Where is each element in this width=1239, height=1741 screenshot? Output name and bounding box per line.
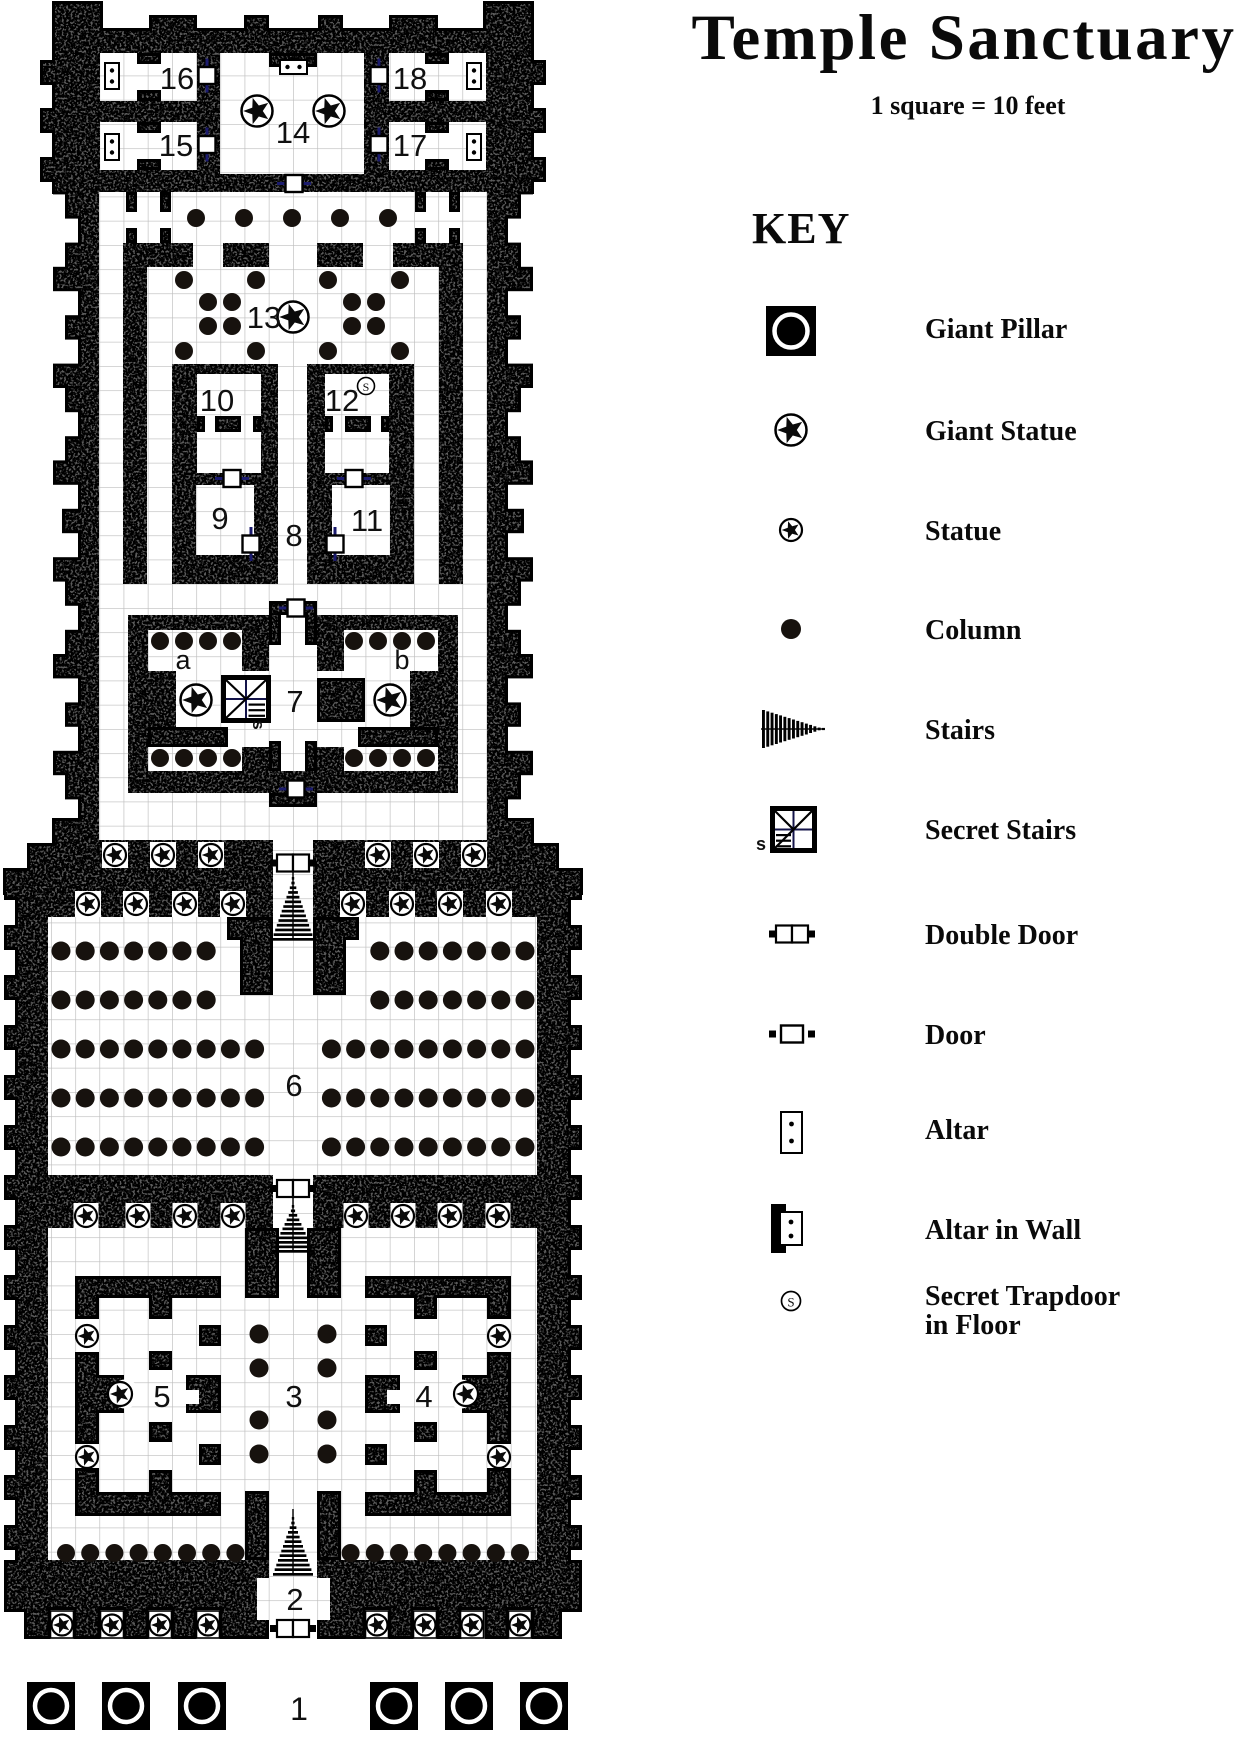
svg-text:1: 1 — [290, 1691, 308, 1727]
svg-text:s: s — [249, 720, 268, 729]
svg-text:10: 10 — [200, 383, 234, 418]
svg-text:1 square = 10 feet: 1 square = 10 feet — [871, 91, 1066, 120]
svg-text:2: 2 — [286, 1582, 303, 1617]
svg-text:KEY: KEY — [752, 204, 850, 253]
svg-text:12: 12 — [325, 383, 359, 418]
svg-text:7: 7 — [286, 684, 303, 719]
svg-text:6: 6 — [285, 1068, 302, 1103]
svg-text:Column: Column — [925, 615, 1022, 646]
svg-text:Double Door: Double Door — [925, 920, 1078, 951]
svg-text:S: S — [787, 1295, 794, 1310]
svg-text:18: 18 — [393, 61, 427, 96]
svg-text:Stairs: Stairs — [925, 715, 995, 746]
svg-text:3: 3 — [285, 1379, 302, 1414]
svg-text:Giant Pillar: Giant Pillar — [925, 314, 1067, 345]
svg-text:5: 5 — [153, 1379, 170, 1414]
svg-text:Temple Sanctuary: Temple Sanctuary — [692, 2, 1237, 74]
svg-text:S: S — [363, 380, 370, 394]
svg-text:a: a — [175, 645, 191, 675]
svg-text:Statue: Statue — [925, 516, 1001, 547]
svg-text:13: 13 — [247, 300, 281, 335]
svg-text:11: 11 — [351, 503, 383, 538]
svg-text:in Floor: in Floor — [925, 1310, 1021, 1341]
svg-text:17: 17 — [393, 128, 427, 163]
svg-text:Altar: Altar — [925, 1115, 989, 1146]
svg-text:9: 9 — [211, 501, 228, 536]
svg-text:Door: Door — [925, 1020, 986, 1051]
svg-text:15: 15 — [159, 128, 193, 163]
svg-text:8: 8 — [285, 518, 302, 553]
svg-text:b: b — [394, 645, 409, 675]
svg-text:Secret Trapdoor: Secret Trapdoor — [925, 1281, 1120, 1312]
svg-text:Altar in Wall: Altar in Wall — [925, 1215, 1081, 1246]
svg-text:Giant Statue: Giant Statue — [925, 416, 1077, 447]
svg-text:16: 16 — [160, 61, 194, 96]
svg-text:Secret Stairs: Secret Stairs — [925, 815, 1076, 846]
svg-text:14: 14 — [276, 115, 310, 150]
svg-text:s: s — [756, 834, 766, 854]
svg-text:4: 4 — [415, 1379, 432, 1414]
